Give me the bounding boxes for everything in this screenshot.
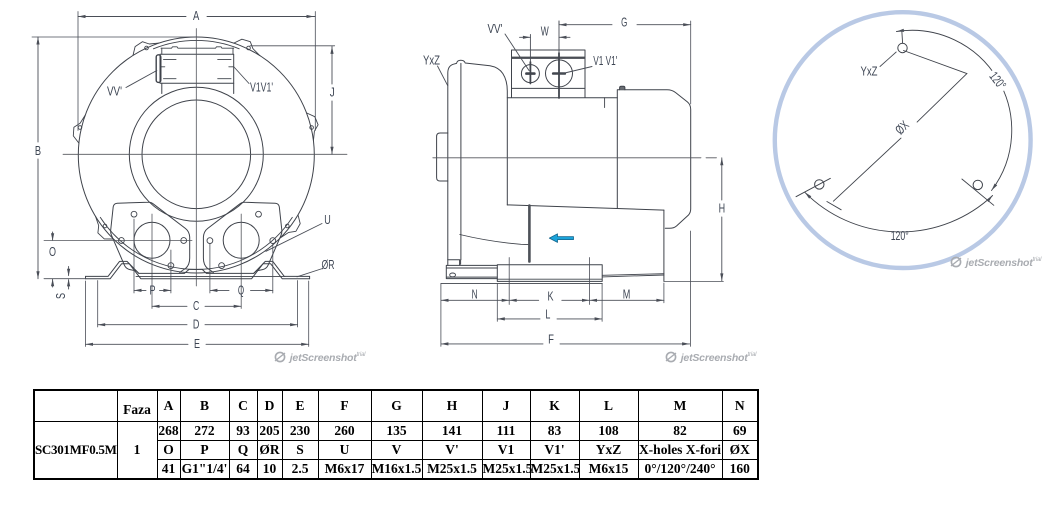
- svg-text:M: M: [623, 286, 631, 301]
- svg-text:ØX: ØX: [892, 117, 912, 137]
- svg-text:D: D: [193, 317, 200, 332]
- svg-text:B: B: [35, 143, 41, 158]
- svg-text:G: G: [621, 15, 627, 30]
- svg-text:J: J: [330, 85, 335, 100]
- svg-text:P: P: [150, 283, 156, 298]
- svg-text:YxZ: YxZ: [861, 64, 878, 79]
- svg-text:A: A: [193, 8, 200, 23]
- svg-text:V1V1': V1V1': [250, 80, 273, 95]
- svg-text:F: F: [548, 332, 554, 347]
- svg-text:H: H: [719, 201, 726, 216]
- svg-text:C: C: [193, 298, 199, 313]
- svg-text:O: O: [49, 244, 56, 259]
- svg-text:V1 V1': V1 V1': [593, 53, 617, 68]
- svg-text:120°: 120°: [891, 228, 909, 243]
- svg-text:U: U: [324, 212, 331, 227]
- svg-text:S: S: [53, 293, 68, 299]
- svg-text:VV': VV': [107, 84, 122, 99]
- svg-text:K: K: [548, 289, 554, 304]
- svg-text:Q: Q: [238, 283, 244, 298]
- svg-text:ØR: ØR: [322, 257, 335, 272]
- svg-text:E: E: [194, 336, 200, 351]
- svg-text:YxZ: YxZ: [423, 53, 440, 68]
- svg-text:N: N: [472, 286, 478, 301]
- svg-text:L: L: [545, 307, 550, 322]
- svg-text:VV': VV': [488, 21, 503, 36]
- svg-text:W: W: [541, 24, 549, 39]
